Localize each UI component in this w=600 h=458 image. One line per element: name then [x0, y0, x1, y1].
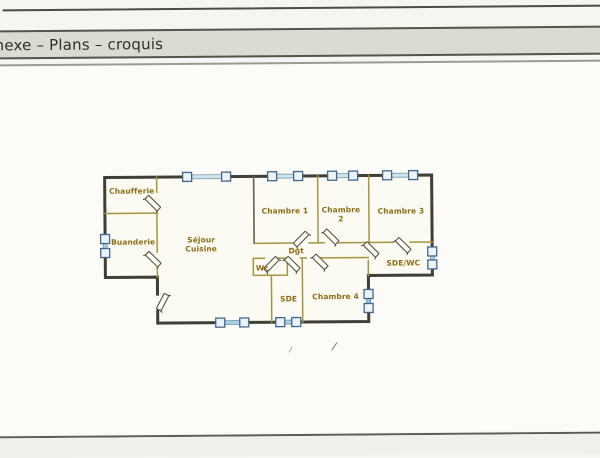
- room-label-chambre-3: Chambre 3: [378, 206, 425, 216]
- room-label-sde-wc: SDE/WC: [386, 258, 420, 268]
- sejour-chambre1-wall: [254, 176, 255, 243]
- scanned-page: nexe – Plans – croquis: [0, 0, 600, 452]
- room-label-wc: Wc: [256, 264, 269, 273]
- room-label-sejour-cuisine: Séjour Cuisine: [185, 235, 217, 254]
- room-label-chambre-4: Chambre 4: [312, 292, 359, 302]
- floor-plan: [0, 0, 600, 452]
- room-label-sde: SDE: [280, 294, 297, 304]
- scan-artifacts: [289, 343, 337, 352]
- room-label-chaufferie: Chaufferie: [109, 186, 154, 196]
- room-label-chambre-2: Chambre 2: [322, 205, 361, 224]
- room-label-buanderie: Buanderie: [111, 237, 155, 247]
- building-footprint: [105, 175, 433, 324]
- room-label-dgt: Dgt: [288, 246, 304, 255]
- room-label-chambre-1: Chambre 1: [262, 206, 309, 216]
